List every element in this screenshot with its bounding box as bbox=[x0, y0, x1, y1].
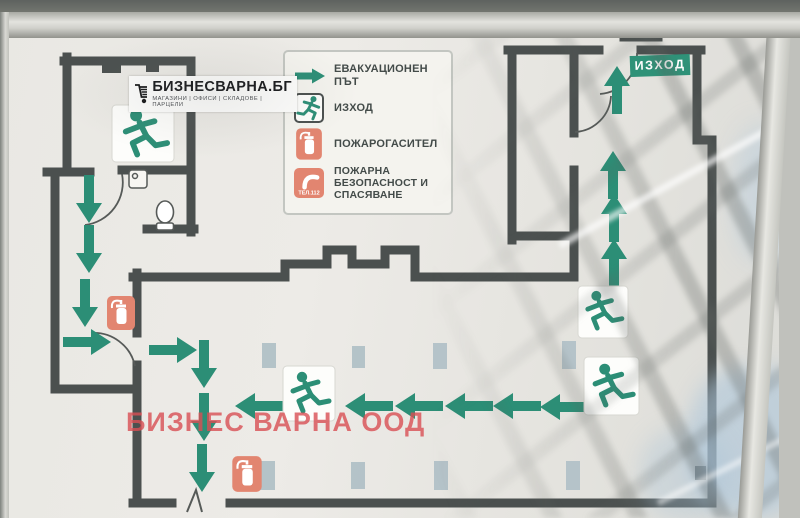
pillar bbox=[562, 341, 576, 369]
frame-left-bar bbox=[0, 0, 9, 518]
fire-extinguisher-icon bbox=[107, 296, 135, 330]
frame-top-bar bbox=[0, 12, 800, 38]
evacuation-plan-photo: ЕВАКУАЦИОНЕН ПЪТ ИЗХОД ПОЖАРОГАСИТЕЛ ТЕЛ… bbox=[0, 0, 800, 518]
route-arrow-left bbox=[493, 393, 541, 419]
legend-label: ЕВАКУАЦИОНЕН ПЪТ bbox=[334, 63, 443, 88]
legend-label: ПОЖАРОГАСИТЕЛ bbox=[334, 138, 437, 151]
route-arrow-down bbox=[72, 279, 98, 327]
pillar bbox=[433, 343, 447, 369]
wall-strip-above-frame bbox=[0, 0, 800, 12]
route-arrow-up bbox=[601, 239, 627, 287]
wall-notch bbox=[102, 62, 121, 73]
legend-label: ПОЖАРНА БЕЗОПАСНОСТ И СПАСЯВАНЕ bbox=[334, 165, 443, 201]
route-arrow-up bbox=[601, 194, 627, 242]
logo-title: БИЗНЕСВАРНА.БГ bbox=[152, 80, 292, 95]
legend-row-exit: ИЗХОД bbox=[293, 93, 443, 123]
route-arrow-down bbox=[76, 175, 102, 223]
pillar bbox=[262, 343, 276, 368]
wall-notch bbox=[146, 62, 159, 72]
exit-door-mark bbox=[187, 490, 202, 512]
logo-watermark: БИЗНЕСВАРНА.БГ МАГАЗИНИ | ОФИСИ | СКЛАДО… bbox=[129, 76, 297, 112]
route-arrow-up bbox=[604, 66, 630, 114]
wall-hall-top-notched bbox=[133, 250, 574, 277]
fire-extinguishers bbox=[107, 296, 262, 492]
route-arrow-left bbox=[540, 394, 588, 420]
emergency-phone-icon: ТЕЛ.112 bbox=[293, 168, 325, 198]
logo-tagline: МАГАЗИНИ | ОФИСИ | СКЛАДОВЕ | ПАРЦЕЛИ bbox=[152, 97, 292, 109]
exit-man-sign bbox=[578, 286, 628, 338]
legend-label: ИЗХОД bbox=[334, 102, 373, 115]
exit-sign-label: ИЗХОД bbox=[630, 54, 691, 77]
toilet-icon bbox=[157, 201, 174, 230]
route-arrow-right bbox=[149, 337, 197, 363]
fire-extinguisher-icon bbox=[293, 128, 325, 160]
legend-row-evacuation-route: ЕВАКУАЦИОНЕН ПЪТ bbox=[293, 63, 443, 88]
door-arc bbox=[575, 96, 611, 132]
legend-row-fire-safety: ТЕЛ.112 ПОЖАРНА БЕЗОПАСНОСТ И СПАСЯВАНЕ bbox=[293, 165, 443, 201]
phone-number-text: ТЕЛ.112 bbox=[298, 191, 319, 197]
pillar bbox=[566, 461, 580, 490]
wall-notch bbox=[695, 466, 706, 480]
sink-icon bbox=[129, 170, 147, 188]
running-man-exit-icon bbox=[293, 93, 325, 123]
legend-box: ЕВАКУАЦИОНЕН ПЪТ ИЗХОД ПОЖАРОГАСИТЕЛ ТЕЛ… bbox=[283, 50, 453, 215]
shopping-cart-icon bbox=[134, 83, 147, 105]
route-arrow-down bbox=[189, 444, 215, 492]
route-arrow-up bbox=[600, 151, 626, 199]
route-arrow-down bbox=[191, 340, 217, 388]
pillar bbox=[352, 346, 365, 368]
evacuation-route-arrow-icon bbox=[293, 67, 325, 85]
exit-man-sign bbox=[112, 105, 174, 162]
pillar bbox=[351, 462, 365, 489]
pillar bbox=[434, 461, 448, 490]
route-arrow-down bbox=[76, 225, 102, 273]
company-watermark: БИЗНЕС ВАРНА ООД bbox=[126, 407, 425, 438]
route-arrow-left bbox=[445, 393, 493, 419]
wall-right-outer bbox=[697, 54, 712, 503]
legend-row-extinguisher: ПОЖАРОГАСИТЕЛ bbox=[293, 128, 443, 160]
route-arrow-right bbox=[63, 329, 111, 355]
exit-man-sign bbox=[584, 357, 639, 415]
fire-extinguisher-icon bbox=[232, 456, 261, 492]
